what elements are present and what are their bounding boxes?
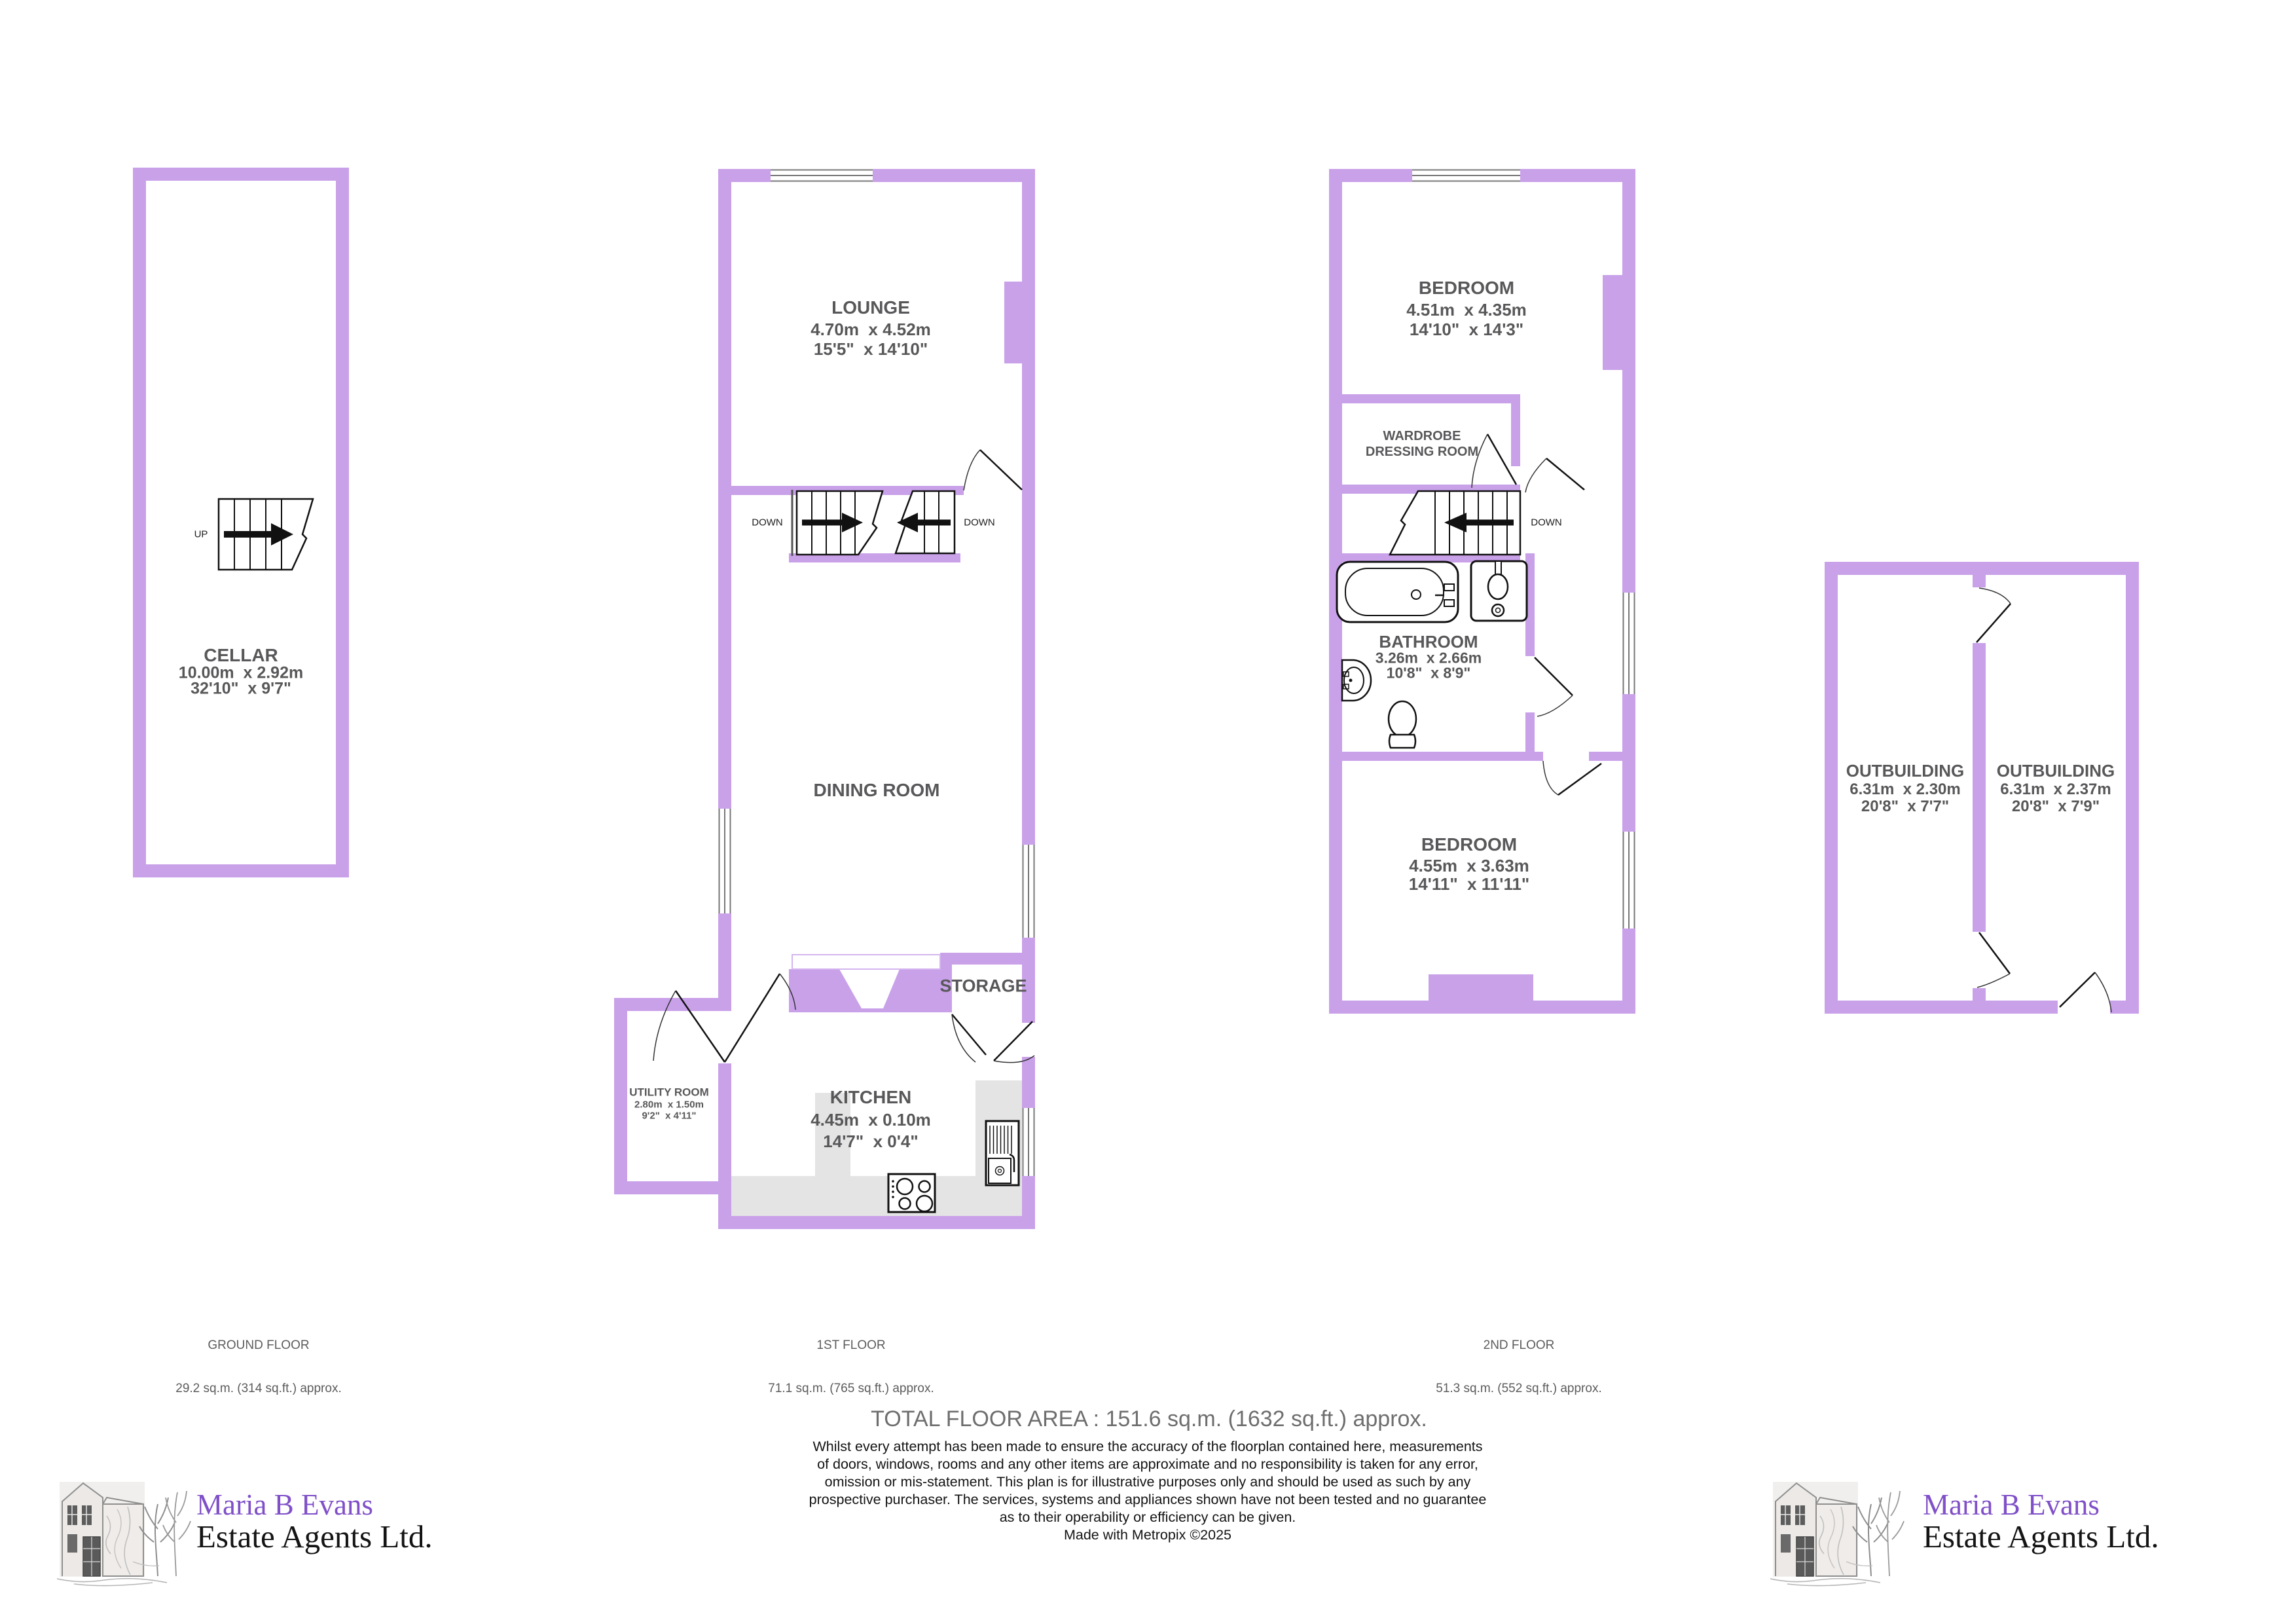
vanity-sink-icon	[1471, 561, 1527, 621]
door-arc	[1543, 761, 1601, 795]
room-label-wardrobe-line2: DRESSING ROOM	[1366, 445, 1478, 458]
disclaimer-credit: Made with Metropix ©2025	[1064, 1526, 1231, 1544]
ground-floor-plan	[133, 168, 349, 877]
floor-summary-second: 2ND FLOOR 51.3 sq.m. (552 sq.ft.) approx…	[1436, 1310, 1601, 1410]
door-arc	[1977, 932, 2010, 987]
window-icon	[1412, 169, 1520, 182]
agency-name-suffix: Estate Agents Ltd.	[196, 1518, 433, 1555]
stair-direction-label-down-left: DOWN	[752, 517, 783, 528]
room-label-outbuilding-left-metric: 6.31m x 2.30m	[1850, 782, 1960, 798]
disclaimer-line: of doors, windows, rooms and any other i…	[817, 1456, 1478, 1473]
agency-logo-sketch-right	[1770, 1482, 1904, 1586]
door-arc	[1535, 657, 1573, 716]
disclaimer-line: Whilst every attempt has been made to en…	[812, 1438, 1482, 1456]
room-label-utility-metric: 2.80m x 1.50m	[634, 1100, 704, 1110]
room-label-bathroom-imperial: 10'8" x 8'9"	[1387, 666, 1471, 681]
window-icon	[1622, 832, 1635, 929]
window-icon	[1022, 845, 1035, 938]
toilet-icon	[1389, 701, 1416, 748]
room-label-storage-name: STORAGE	[939, 978, 1027, 995]
room-label-bedroom2-name: BEDROOM	[1421, 836, 1517, 854]
agency-name: Maria B Evans	[1923, 1488, 2100, 1522]
room-label-kitchen-name: KITCHEN	[830, 1088, 911, 1107]
floor-area-ground: 29.2 sq.m. (314 sq.ft.) approx.	[175, 1382, 341, 1396]
room-label-outbuilding-right-name: OUTBUILDING	[1997, 762, 2115, 779]
window-icon	[771, 169, 873, 182]
room-label-bedroom2-imperial: 14'11" x 11'11"	[1409, 875, 1530, 893]
stairs-down-icon	[1390, 491, 1520, 555]
floor-summary-ground: GROUND FLOOR 29.2 sq.m. (314 sq.ft.) app…	[175, 1310, 341, 1410]
door-arc	[1472, 434, 1516, 488]
disclaimer-line: as to their operability or efficiency ca…	[1000, 1509, 1296, 1526]
agency-name: Maria B Evans	[196, 1488, 373, 1522]
bedroom2-chimney-breast	[1429, 974, 1533, 1001]
door-arc	[725, 974, 795, 1062]
room-label-utility-name: UTILITY ROOM	[629, 1087, 709, 1098]
stair-direction-label-down-right: DOWN	[964, 517, 995, 528]
window-icon	[718, 809, 731, 913]
agency-logo-sketch-left	[57, 1482, 191, 1586]
lounge-chimney-breast	[1004, 282, 1022, 363]
agency-name-suffix: Estate Agents Ltd.	[1923, 1518, 2159, 1555]
floorplan-drawing	[0, 0, 2296, 1601]
fireplace-alcove	[792, 955, 940, 969]
floor-summary-first: 1ST FLOOR 71.1 sq.m. (765 sq.ft.) approx…	[768, 1310, 934, 1410]
total-floor-area: TOTAL FLOOR AREA : 151.6 sq.m. (1632 sq.…	[871, 1407, 1427, 1432]
floorplan-page: CELLAR 10.00m x 2.92m 32'10" x 9'7" UP L…	[0, 0, 2296, 1601]
stairs-down-right-icon	[896, 491, 955, 553]
floor-area-second: 51.3 sq.m. (552 sq.ft.) approx.	[1436, 1382, 1601, 1396]
disclaimer-line: omission or mis-statement. This plan is …	[825, 1473, 1471, 1491]
bedroom1-chimney-breast	[1603, 275, 1622, 370]
room-label-kitchen-metric: 4.45m x 0.10m	[811, 1111, 931, 1128]
room-label-dining-name: DINING ROOM	[814, 781, 940, 800]
door-arc	[2060, 972, 2111, 1012]
room-label-outbuilding-right-imperial: 20'8" x 7'9"	[2012, 799, 2100, 815]
disclaimer-line: prospective purchaser. The services, sys…	[809, 1491, 1487, 1509]
room-label-utility-imperial: 9'2" x 4'11"	[642, 1111, 696, 1121]
room-label-outbuilding-left-imperial: 20'8" x 7'7"	[1861, 799, 1949, 815]
door-arc	[964, 450, 1022, 490]
window-icon	[1022, 1108, 1035, 1176]
room-label-lounge-metric: 4.70m x 4.52m	[811, 321, 931, 338]
stair-direction-label-down: DOWN	[1531, 517, 1562, 528]
hob-icon	[888, 1174, 935, 1212]
door-arc	[1525, 458, 1584, 492]
stairs-down-left-icon	[797, 491, 883, 555]
bathtub-icon	[1337, 562, 1458, 622]
floor-area-first: 71.1 sq.m. (765 sq.ft.) approx.	[768, 1382, 934, 1396]
room-label-bathroom-name: BATHROOM	[1379, 633, 1478, 650]
floor-name-first: 1ST FLOOR	[768, 1338, 934, 1353]
room-label-wardrobe-line1: WARDROBE	[1383, 430, 1461, 443]
room-label-bathroom-metric: 3.26m x 2.66m	[1376, 651, 1482, 666]
room-label-outbuilding-left-name: OUTBUILDING	[1846, 762, 1965, 779]
basin-icon	[1342, 660, 1371, 701]
window-icon	[1622, 593, 1635, 694]
room-label-bedroom1-imperial: 14'10" x 14'3"	[1410, 321, 1523, 338]
kitchen-sink-icon	[986, 1121, 1019, 1185]
room-label-bedroom2-metric: 4.55m x 3.63m	[1409, 857, 1529, 874]
room-label-kitchen-imperial: 14'7" x 0'4"	[823, 1133, 918, 1150]
stair-direction-label-up: UP	[194, 529, 208, 540]
door-arc	[1977, 588, 2011, 642]
room-label-bedroom1-metric: 4.51m x 4.35m	[1406, 301, 1527, 318]
room-label-bedroom1-name: BEDROOM	[1419, 279, 1514, 297]
room-label-lounge-imperial: 15'5" x 14'10"	[814, 340, 928, 358]
floor-name-ground: GROUND FLOOR	[175, 1338, 341, 1353]
cellar-stairs-up-icon	[219, 499, 313, 570]
room-label-cellar-name: CELLAR	[204, 646, 278, 665]
room-label-cellar-imperial: 32'10" x 9'7"	[191, 681, 291, 697]
room-label-outbuilding-right-metric: 6.31m x 2.37m	[2000, 782, 2111, 798]
floor-name-second: 2ND FLOOR	[1436, 1338, 1601, 1353]
room-label-lounge-name: LOUNGE	[831, 299, 910, 317]
